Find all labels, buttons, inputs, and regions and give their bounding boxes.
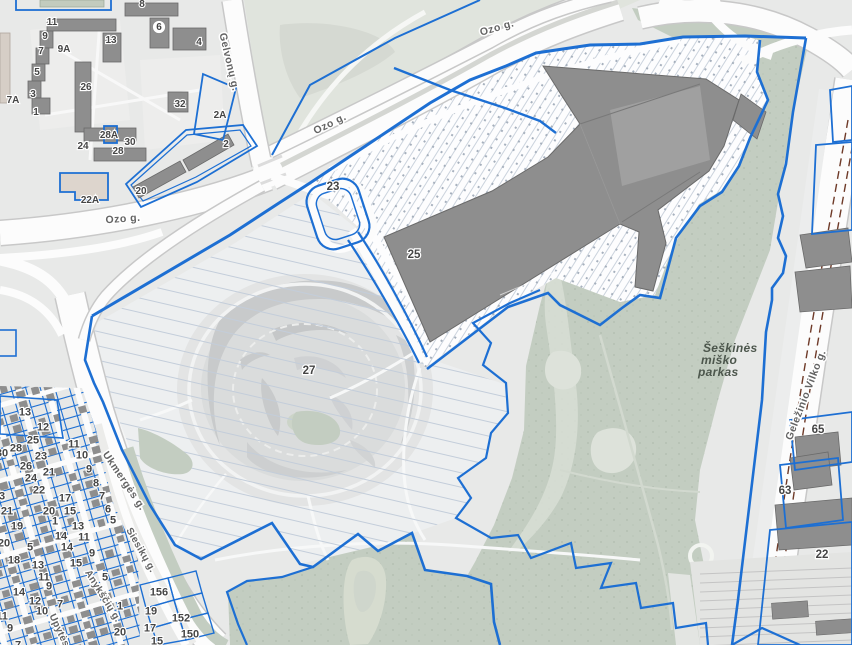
svg-text:22: 22 <box>33 485 45 497</box>
svg-text:24: 24 <box>25 473 38 485</box>
svg-text:20: 20 <box>135 186 147 197</box>
svg-text:150: 150 <box>181 629 199 641</box>
svg-text:6: 6 <box>156 22 162 33</box>
svg-text:23: 23 <box>327 181 340 193</box>
svg-text:28A: 28A <box>100 130 118 141</box>
svg-text:5: 5 <box>110 515 116 527</box>
svg-text:9: 9 <box>86 464 92 476</box>
svg-text:30: 30 <box>0 448 8 460</box>
svg-text:15: 15 <box>151 636 163 645</box>
svg-text:18: 18 <box>8 555 20 567</box>
svg-text:2: 2 <box>223 139 229 150</box>
svg-text:10: 10 <box>36 606 48 618</box>
svg-text:7: 7 <box>57 599 63 611</box>
svg-text:4: 4 <box>196 37 202 48</box>
svg-text:28: 28 <box>10 443 22 455</box>
svg-text:152: 152 <box>172 613 190 625</box>
svg-text:21: 21 <box>1 506 13 518</box>
svg-text:7: 7 <box>99 491 105 503</box>
svg-text:1: 1 <box>52 516 58 528</box>
svg-text:14: 14 <box>13 587 26 599</box>
svg-text:8: 8 <box>139 0 145 10</box>
svg-text:1: 1 <box>33 107 39 118</box>
svg-text:20: 20 <box>0 538 10 550</box>
svg-text:25: 25 <box>27 435 39 447</box>
svg-text:15: 15 <box>70 558 82 570</box>
svg-text:9: 9 <box>42 31 48 42</box>
svg-text:32: 32 <box>174 99 186 110</box>
svg-text:17: 17 <box>59 493 71 505</box>
svg-text:11: 11 <box>78 532 90 544</box>
svg-text:8: 8 <box>93 478 99 490</box>
svg-text:7: 7 <box>15 640 21 645</box>
svg-text:5: 5 <box>27 542 33 554</box>
svg-text:13: 13 <box>32 560 44 572</box>
svg-text:9: 9 <box>46 581 52 593</box>
svg-text:14: 14 <box>61 542 74 554</box>
svg-text:Ozo g.: Ozo g. <box>105 212 141 226</box>
svg-text:13: 13 <box>105 35 117 46</box>
svg-text:9A: 9A <box>58 44 71 55</box>
svg-text:17: 17 <box>144 623 156 635</box>
svg-text:21: 21 <box>43 467 55 479</box>
svg-text:5: 5 <box>34 67 40 78</box>
svg-text:2A: 2A <box>214 110 227 121</box>
svg-text:28: 28 <box>112 146 124 157</box>
svg-text:63: 63 <box>779 485 792 497</box>
svg-text:19: 19 <box>145 606 157 618</box>
svg-text:9: 9 <box>7 623 13 635</box>
svg-text:22: 22 <box>816 549 829 561</box>
svg-text:25: 25 <box>408 249 421 261</box>
svg-text:11: 11 <box>47 17 58 28</box>
svg-text:19: 19 <box>11 521 23 533</box>
svg-text:26: 26 <box>20 461 32 473</box>
svg-text:7: 7 <box>38 46 44 57</box>
svg-text:22A: 22A <box>81 195 99 206</box>
svg-text:3: 3 <box>0 491 5 503</box>
svg-text:30: 30 <box>124 137 136 148</box>
svg-text:20: 20 <box>114 627 126 639</box>
svg-text:65: 65 <box>812 424 825 436</box>
svg-text:5: 5 <box>102 572 108 584</box>
svg-text:23: 23 <box>35 451 47 463</box>
svg-text:10: 10 <box>76 450 88 462</box>
svg-text:156: 156 <box>150 587 168 599</box>
svg-text:parkas: parkas <box>697 365 739 379</box>
svg-text:15: 15 <box>64 506 76 518</box>
svg-text:7A: 7A <box>7 95 20 106</box>
svg-text:13: 13 <box>19 407 31 419</box>
svg-text:24: 24 <box>77 141 89 152</box>
svg-text:27: 27 <box>303 365 316 377</box>
svg-text:3: 3 <box>30 89 36 100</box>
svg-text:11: 11 <box>0 611 8 623</box>
svg-text:9: 9 <box>89 548 95 560</box>
svg-text:26: 26 <box>80 82 92 93</box>
svg-text:12: 12 <box>37 422 49 434</box>
